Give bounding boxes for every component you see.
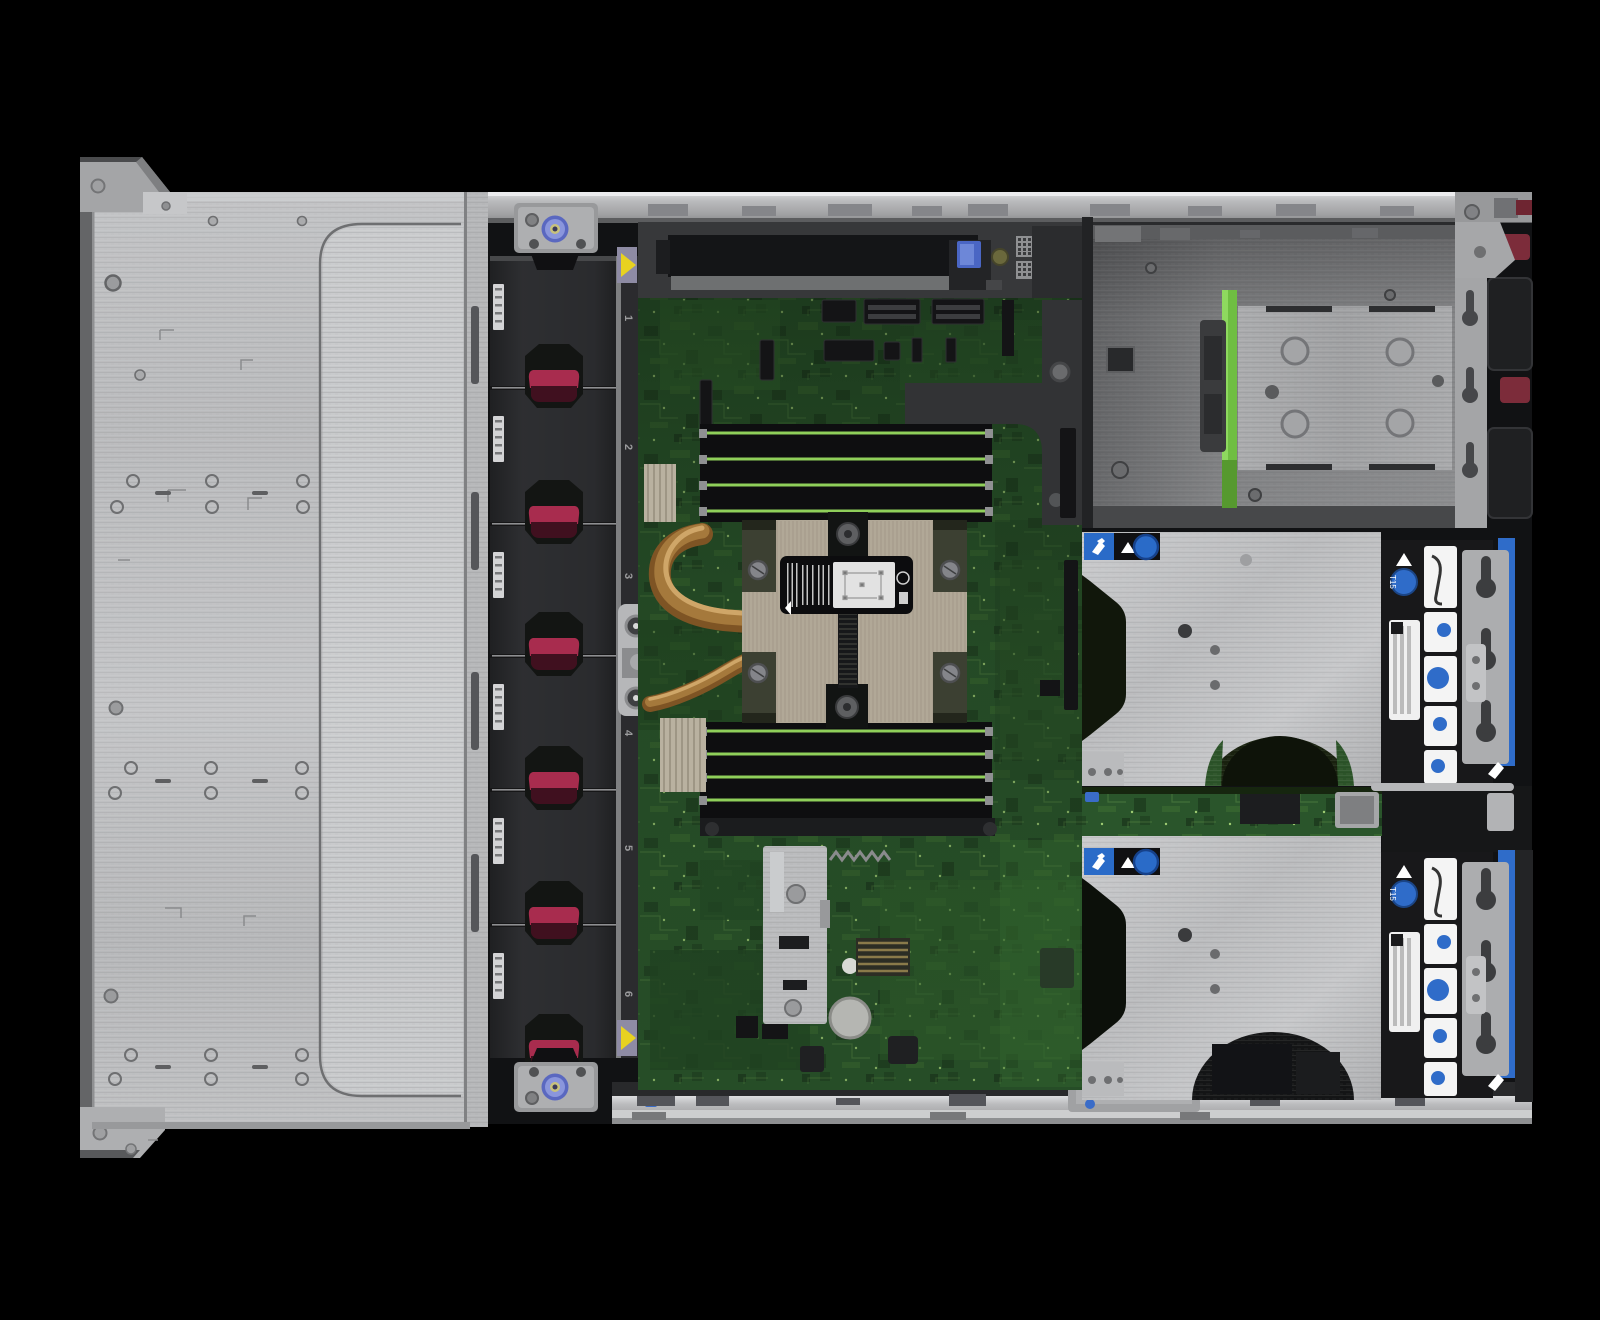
svg-text:T15: T15 bbox=[1388, 887, 1397, 901]
svg-text:1: 1 bbox=[622, 315, 634, 321]
svg-text:4: 4 bbox=[622, 730, 634, 737]
svg-text:3: 3 bbox=[622, 573, 634, 579]
svg-text:2: 2 bbox=[622, 444, 634, 450]
svg-text:T15: T15 bbox=[1388, 575, 1397, 589]
svg-text:5: 5 bbox=[622, 845, 634, 851]
svg-text:6: 6 bbox=[622, 991, 634, 997]
